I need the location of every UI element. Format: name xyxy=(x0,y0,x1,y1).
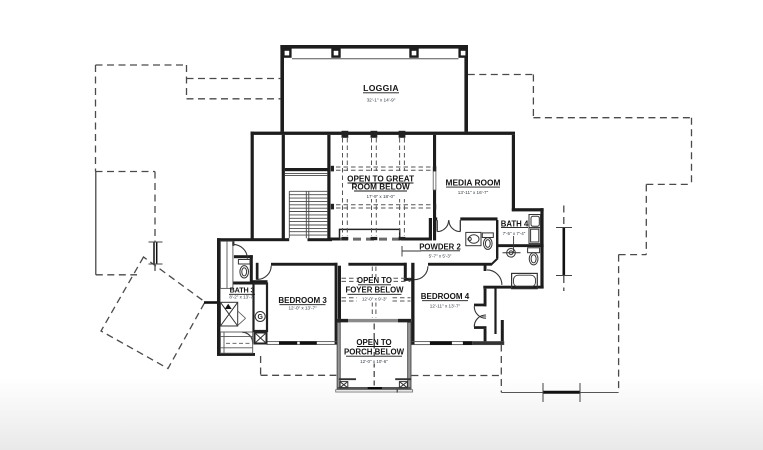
svg-text:12'-0" x 10'-6": 12'-0" x 10'-6" xyxy=(360,359,388,364)
svg-text:17'-9" x 18'-0": 17'-9" x 18'-0" xyxy=(366,194,395,199)
svg-text:12'-0" x 9'-3": 12'-0" x 9'-3" xyxy=(362,296,388,301)
svg-text:OPEN TO: OPEN TO xyxy=(357,276,392,285)
svg-text:G: G xyxy=(257,314,263,321)
svg-text:FOYER BELOW: FOYER BELOW xyxy=(345,286,404,295)
svg-text:5'-7" x 5'-3": 5'-7" x 5'-3" xyxy=(429,253,452,258)
svg-text:13'-11" x 16'-7": 13'-11" x 16'-7" xyxy=(458,190,489,195)
svg-text:PORCH BELOW: PORCH BELOW xyxy=(344,348,405,357)
svg-text:ROOM BELOW: ROOM BELOW xyxy=(351,183,409,192)
svg-text:12'-0" x 13'-7": 12'-0" x 13'-7" xyxy=(288,305,317,310)
svg-text:BEDROOM 3: BEDROOM 3 xyxy=(278,296,327,305)
svg-text:8'-2" x 13'-7": 8'-2" x 13'-7" xyxy=(229,294,255,299)
svg-text:BATH 3: BATH 3 xyxy=(230,286,255,295)
svg-text:32'-1" x 14'-9": 32'-1" x 14'-9" xyxy=(367,98,396,103)
svg-text:MEDIA ROOM: MEDIA ROOM xyxy=(445,177,500,187)
svg-text:OPEN TO: OPEN TO xyxy=(356,338,391,347)
svg-text:7'-5" x 7'-4": 7'-5" x 7'-4" xyxy=(503,231,526,236)
svg-text:LOGGIA: LOGGIA xyxy=(363,83,399,93)
svg-text:POWDER 2: POWDER 2 xyxy=(419,243,461,252)
svg-text:BEDROOM 4: BEDROOM 4 xyxy=(421,292,470,301)
svg-text:12'-11" x 13'-7": 12'-11" x 13'-7" xyxy=(430,304,461,309)
svg-text:BATH 4: BATH 4 xyxy=(501,219,529,228)
